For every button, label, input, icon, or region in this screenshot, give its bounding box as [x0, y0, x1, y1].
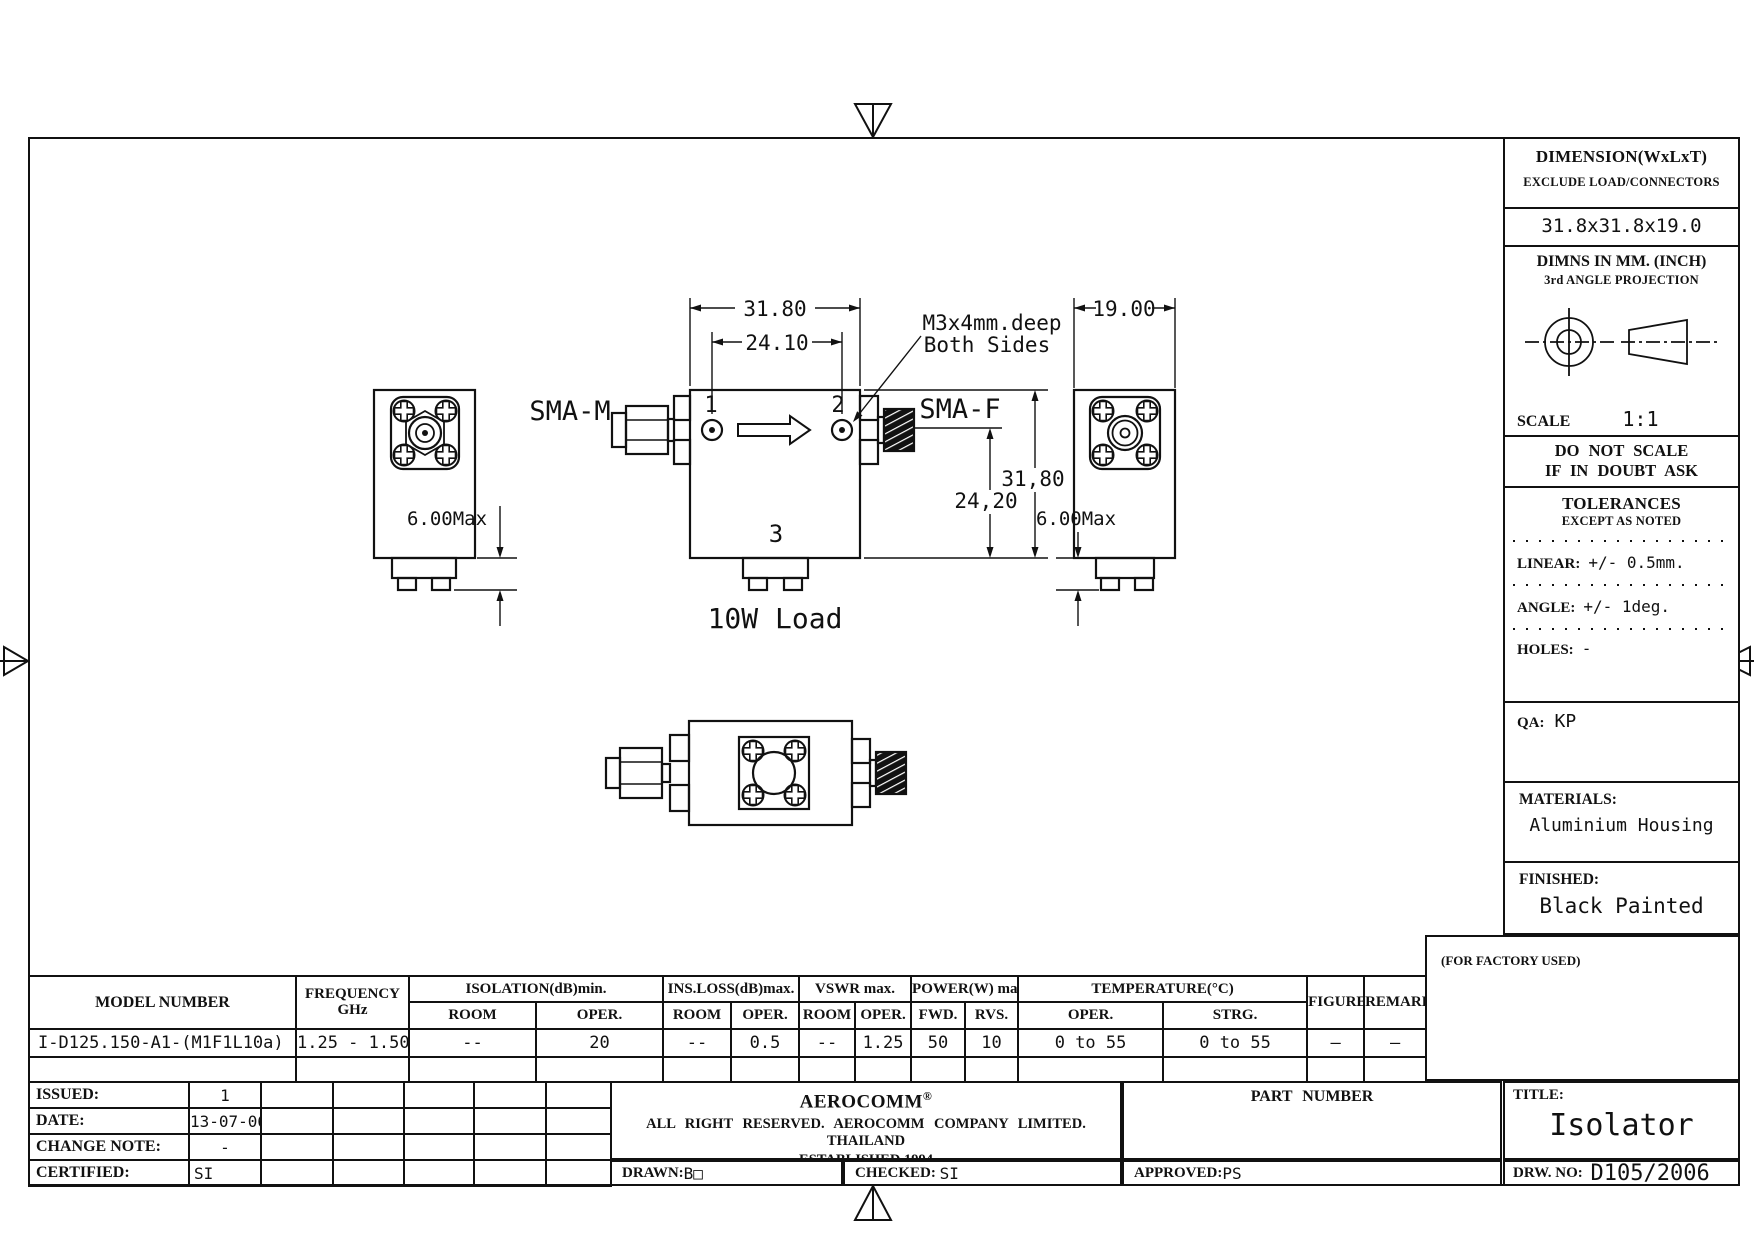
factory-note: (FOR FACTORY USED) [1441, 953, 1580, 968]
issued-value: 1 [189, 1082, 261, 1108]
qa-box: QA: KP [1505, 703, 1738, 783]
col-frequency: FREQUENCY GHz [296, 976, 409, 1029]
qa-value: KP [1555, 711, 1577, 732]
figure-value: — [1307, 1029, 1364, 1057]
col-frequency-line2: GHz [297, 1003, 408, 1019]
holes-value: - [1582, 639, 1592, 658]
company-box: AEROCOMM® ALL RIGHT RESERVED. AEROCOMM C… [610, 1081, 1122, 1160]
col-remark: REMARK [1364, 976, 1426, 1029]
dimension-subtitle: EXCLUDE LOAD/CONNECTORS [1505, 175, 1738, 190]
drw-no-value: D105/2006 [1591, 1161, 1710, 1186]
dimension-box: DIMENSION(WxLxT) EXCLUDE LOAD/CONNECTORS [1505, 139, 1738, 209]
checked-label: CHECKED: [855, 1165, 940, 1182]
angle-label: ANGLE: [1517, 600, 1575, 617]
dimension-value: 31.8x31.8x19.0 [1505, 209, 1738, 243]
registered-mark-icon: ® [923, 1089, 932, 1103]
projection-box: DIMNS IN MM. (INCH) 3rd ANGLE PROJECTION… [1505, 247, 1738, 437]
dimension-value-box: 31.8x31.8x19.0 [1505, 209, 1738, 247]
units-line2: 3rd ANGLE PROJECTION [1505, 273, 1738, 288]
drw-no-cell: DRW. NO: D105/2006 [1503, 1160, 1740, 1186]
angle-value: +/- 1deg. [1583, 597, 1670, 616]
change-note-value: - [189, 1134, 261, 1160]
certified-value: SI [189, 1160, 261, 1186]
sidebar-panel: DIMENSION(WxLxT) EXCLUDE LOAD/CONNECTORS… [1503, 137, 1740, 935]
change-note-label: CHANGE NOTE: [29, 1134, 189, 1160]
linear-label: LINEAR: [1517, 556, 1580, 573]
table-row: CERTIFIED: SI [29, 1160, 611, 1186]
approved-cell: APPROVED: PS [1122, 1160, 1502, 1186]
col-model-number: MODEL NUMBER [29, 976, 296, 1029]
temp-oper-value: 0 to 55 [1018, 1029, 1163, 1057]
approved-value: PS [1222, 1164, 1241, 1183]
temp-strg-value: 0 to 55 [1163, 1029, 1307, 1057]
scale-label: SCALE [1517, 413, 1570, 431]
model-number-value: I-D125.150-A1-(M1F1L10a) [29, 1029, 296, 1057]
col-figure: FIGURE [1307, 976, 1364, 1029]
loss-room-value: -- [663, 1029, 731, 1057]
tolerances-title: TOLERANCES [1505, 494, 1738, 514]
certified-label: CERTIFIED: [29, 1160, 189, 1186]
warning-line1: DO NOT SCALE [1505, 441, 1738, 461]
finished-box: FINISHED: Black Painted [1505, 863, 1738, 933]
spec-table: MODEL NUMBER FREQUENCY GHz ISOLATION(dB)… [28, 975, 1425, 1083]
company-name: AEROCOMM [800, 1091, 923, 1112]
materials-label: MATERIALS: [1505, 791, 1738, 809]
col-isolation: ISOLATION(dB)min. [409, 976, 663, 1002]
drawn-cell: DRAWN: B□ [610, 1160, 843, 1186]
subcol: STRG. [1163, 1002, 1307, 1029]
part-number-box: PART NUMBER [1122, 1081, 1502, 1160]
col-insloss: INS.LOSS(dB)max. [663, 976, 799, 1002]
linear-value: +/- 0.5mm. [1588, 553, 1684, 572]
tolerances-box: TOLERANCES EXCEPT AS NOTED LINEAR: +/- 0… [1505, 488, 1738, 703]
drawing-sheet: 31.80 24.10 19.00 31,80 24,20 6.00Max 6.… [0, 0, 1754, 1240]
dotted-divider [1513, 540, 1730, 542]
subcol: FWD. [911, 1002, 965, 1029]
part-number-label: PART NUMBER [1124, 1088, 1500, 1106]
col-vswr: VSWR max. [799, 976, 911, 1002]
drawn-label: DRAWN: [622, 1165, 684, 1182]
finished-label: FINISHED: [1505, 871, 1738, 889]
drawn-value: B□ [684, 1164, 703, 1183]
materials-box: MATERIALS: Aluminium Housing [1505, 783, 1738, 863]
power-fwd-value: 50 [911, 1029, 965, 1057]
col-temperature: TEMPERATURE(°C) [1018, 976, 1307, 1002]
freq-value: 1.25 - 1.50 [296, 1029, 409, 1057]
warning-line2: IF IN DOUBT ASK [1505, 461, 1738, 481]
dotted-divider [1513, 628, 1730, 630]
loss-oper-value: 0.5 [731, 1029, 799, 1057]
iso-room-value: -- [409, 1029, 536, 1057]
power-rvs-value: 10 [965, 1029, 1018, 1057]
dimension-title: DIMENSION(WxLxT) [1505, 147, 1738, 167]
tolerances-subtitle: EXCEPT AS NOTED [1505, 514, 1738, 529]
table-row: ISSUED: 1 [29, 1082, 611, 1108]
spec-empty-row [29, 1057, 1426, 1082]
col-power: POWER(W) max. [911, 976, 1018, 1002]
subcol: OPER. [731, 1002, 799, 1029]
page-title: Isolator [1505, 1108, 1738, 1143]
title-box: TITLE: Isolator [1503, 1081, 1740, 1160]
iso-oper-value: 20 [536, 1029, 663, 1057]
subcol: RVS. [965, 1002, 1018, 1029]
spec-data-row: I-D125.150-A1-(M1F1L10a) 1.25 - 1.50 -- … [29, 1029, 1426, 1057]
factory-note-box: (FOR FACTORY USED) [1425, 935, 1740, 1081]
qa-label: QA: [1517, 715, 1545, 731]
revision-table: ISSUED: 1 DATE: 13-07-06 CHANGE NOTE: - … [28, 1081, 612, 1187]
holes-label: HOLES: [1517, 642, 1574, 659]
units-line1: DIMNS IN MM. (INCH) [1505, 253, 1738, 271]
vswr-room-value: -- [799, 1029, 855, 1057]
vswr-oper-value: 1.25 [855, 1029, 911, 1057]
table-row: DATE: 13-07-06 [29, 1108, 611, 1134]
drw-no-label: DRW. NO: [1513, 1165, 1587, 1182]
table-row: CHANGE NOTE: - [29, 1134, 611, 1160]
company-line1: ALL RIGHT RESERVED. AEROCOMM COMPANY LIM… [612, 1116, 1120, 1150]
subcol: ROOM [409, 1002, 536, 1029]
subcol: OPER. [536, 1002, 663, 1029]
subcol: ROOM [799, 1002, 855, 1029]
dotted-divider [1513, 584, 1730, 586]
approved-label: APPROVED: [1134, 1165, 1222, 1182]
checked-value: SI [940, 1164, 959, 1183]
col-frequency-line1: FREQUENCY [297, 987, 408, 1003]
subcol: OPER. [855, 1002, 911, 1029]
issued-label: ISSUED: [29, 1082, 189, 1108]
subcol: ROOM [663, 1002, 731, 1029]
materials-value: Aluminium Housing [1505, 815, 1738, 836]
title-label: TITLE: [1513, 1087, 1738, 1104]
third-angle-projection-icon [1517, 292, 1727, 392]
remark-value: — [1364, 1029, 1426, 1057]
finished-value: Black Painted [1505, 894, 1738, 918]
checked-cell: CHECKED: SI [843, 1160, 1122, 1186]
scale-value: 1:1 [1622, 407, 1658, 431]
subcol: OPER. [1018, 1002, 1163, 1029]
date-label: DATE: [29, 1108, 189, 1134]
do-not-scale-box: DO NOT SCALE IF IN DOUBT ASK [1505, 437, 1738, 488]
date-value: 13-07-06 [189, 1108, 261, 1134]
